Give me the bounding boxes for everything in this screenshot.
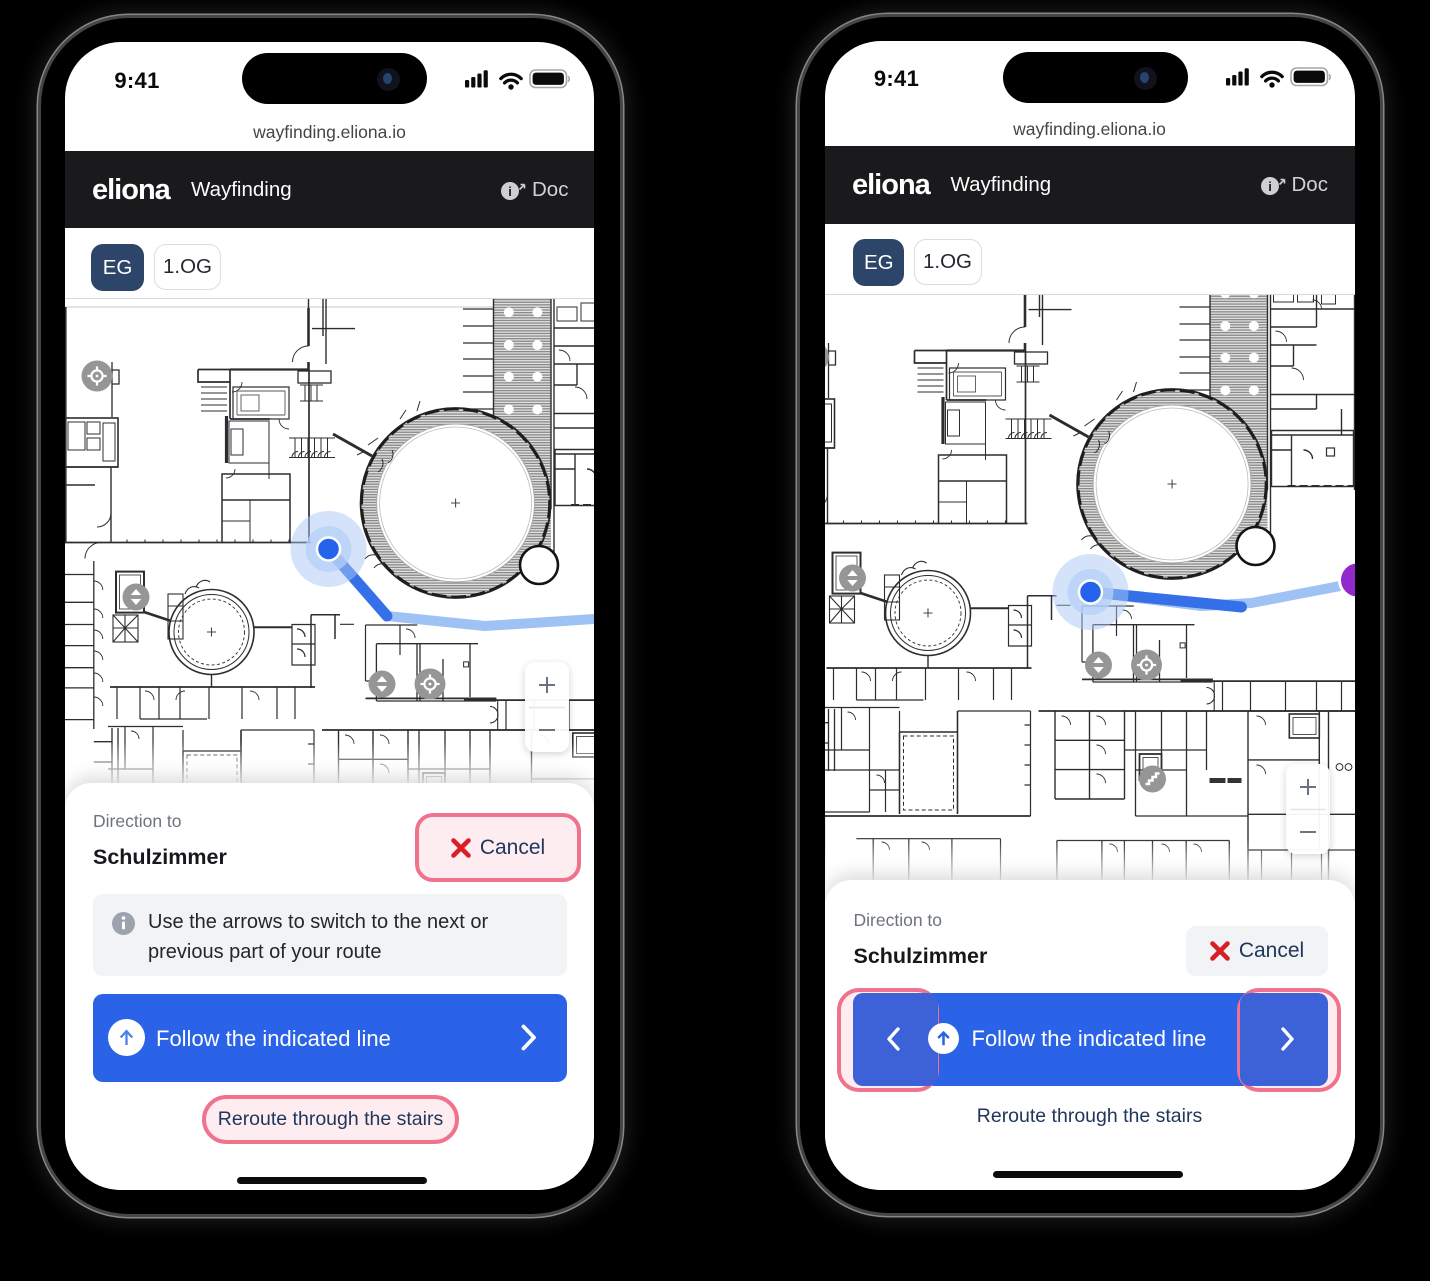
svg-text:i: i: [1268, 179, 1272, 194]
svg-text:eliona: eliona: [92, 174, 172, 206]
svg-text:i: i: [508, 184, 512, 199]
svg-text:eliona: eliona: [852, 169, 932, 201]
